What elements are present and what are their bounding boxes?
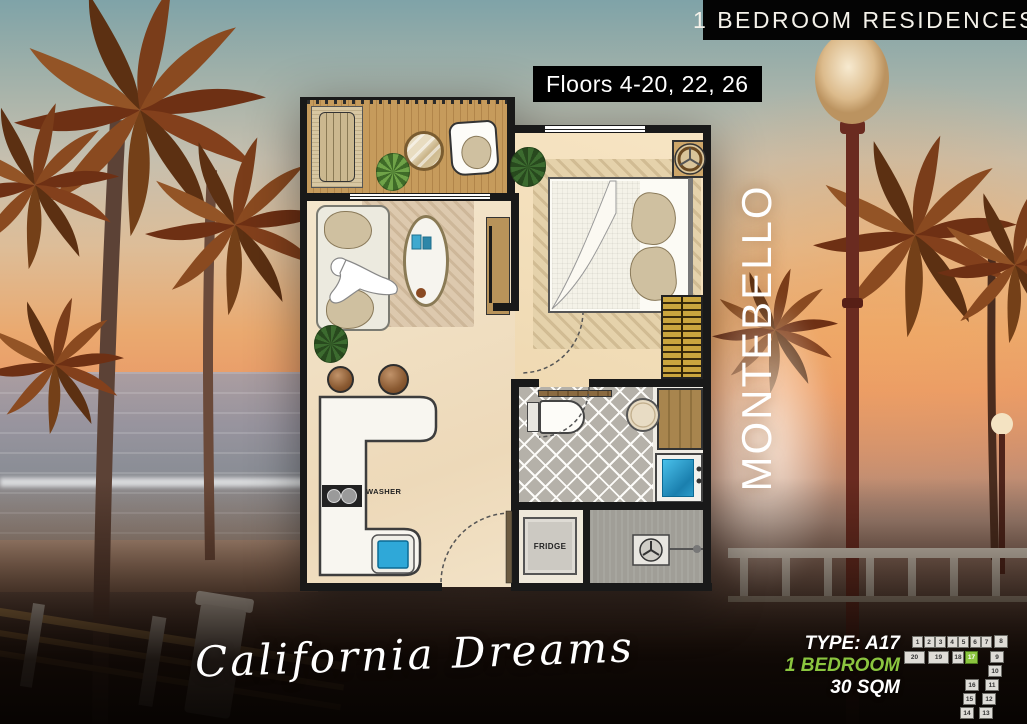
balcony-table — [404, 131, 444, 171]
fridge-label: FRIDGE — [534, 542, 567, 551]
wall — [511, 379, 539, 387]
locator-unit-17: 17 — [965, 651, 978, 664]
floor-plan: FRIDGE — [300, 97, 712, 593]
locator-unit-3: 3 — [935, 636, 946, 648]
wardrobe — [661, 295, 703, 379]
lounger — [319, 112, 355, 182]
wall — [511, 387, 519, 583]
sofa-cushion — [324, 211, 372, 249]
balcony-chair — [448, 119, 500, 176]
balcony-slider-door — [350, 194, 490, 199]
wall — [519, 502, 711, 510]
ac-ledge-floor — [585, 508, 705, 585]
locator-unit-18: 18 — [952, 651, 964, 664]
locator-unit-4: 4 — [947, 636, 958, 648]
fridge-box: FRIDGE — [523, 517, 577, 575]
bath-shelf — [538, 390, 612, 397]
floors-badge: Floors 4-20, 22, 26 — [533, 66, 762, 102]
locator-unit-6: 6 — [970, 636, 981, 648]
locator-unit-15: 15 — [963, 693, 976, 705]
locator-unit-16: 16 — [965, 679, 979, 691]
unit-bedrooms: 1 BEDROOM — [760, 655, 900, 677]
wall — [493, 303, 519, 311]
wall — [300, 97, 307, 591]
tv-console — [486, 217, 510, 315]
coffee-table — [403, 215, 449, 307]
bed-sheet — [552, 181, 640, 309]
shower-water — [662, 459, 694, 497]
locator-unit-20: 20 — [904, 651, 925, 664]
wall — [507, 97, 515, 201]
wall — [511, 583, 712, 591]
locator-unit-7: 7 — [981, 636, 992, 648]
wall — [300, 583, 442, 591]
wall — [703, 125, 711, 591]
locator-unit-14: 14 — [960, 707, 974, 719]
locator-unit-10: 10 — [988, 665, 1002, 677]
headboard — [688, 175, 693, 315]
balcony-rail-ticks — [307, 100, 509, 104]
bathroom-vanity — [657, 388, 703, 450]
locator-unit-19: 19 — [928, 651, 949, 664]
wash-basin — [626, 398, 660, 432]
bar-stool — [327, 366, 354, 393]
locator-unit-8: 8 — [994, 635, 1008, 648]
wall — [583, 510, 590, 583]
locator-unit-13: 13 — [979, 707, 993, 719]
locator-unit-9: 9 — [990, 651, 1004, 663]
locator-unit-12: 12 — [982, 693, 996, 705]
bedroom-window — [545, 126, 645, 132]
locator-unit-1: 1 — [912, 636, 923, 648]
wall — [511, 193, 519, 311]
washer-label: WASHER — [366, 487, 401, 496]
bar-stool — [378, 364, 409, 395]
locator-unit-5: 5 — [958, 636, 969, 648]
toilet — [539, 400, 585, 434]
unit-type: TYPE: A17 — [760, 633, 900, 655]
residences-banner: 1 BEDROOM RESIDENCES — [703, 0, 1027, 40]
locator-unit-11: 11 — [985, 679, 999, 691]
poster: FRIDGE — [0, 0, 1027, 724]
unit-info: TYPE: A17 1 BEDROOM 30 SQM — [760, 633, 900, 699]
wall — [589, 379, 711, 387]
unit-area: 30 SQM — [760, 677, 900, 699]
unit-locator: 1234567820191817910111213161514 — [904, 634, 1012, 724]
corner-table-niche — [672, 140, 707, 178]
locator-unit-2: 2 — [924, 636, 935, 648]
building-name: MONTEBELLO — [729, 173, 785, 503]
residences-title: 1 BEDROOM RESIDENCES — [693, 7, 1027, 34]
toilet-tank — [527, 402, 539, 432]
